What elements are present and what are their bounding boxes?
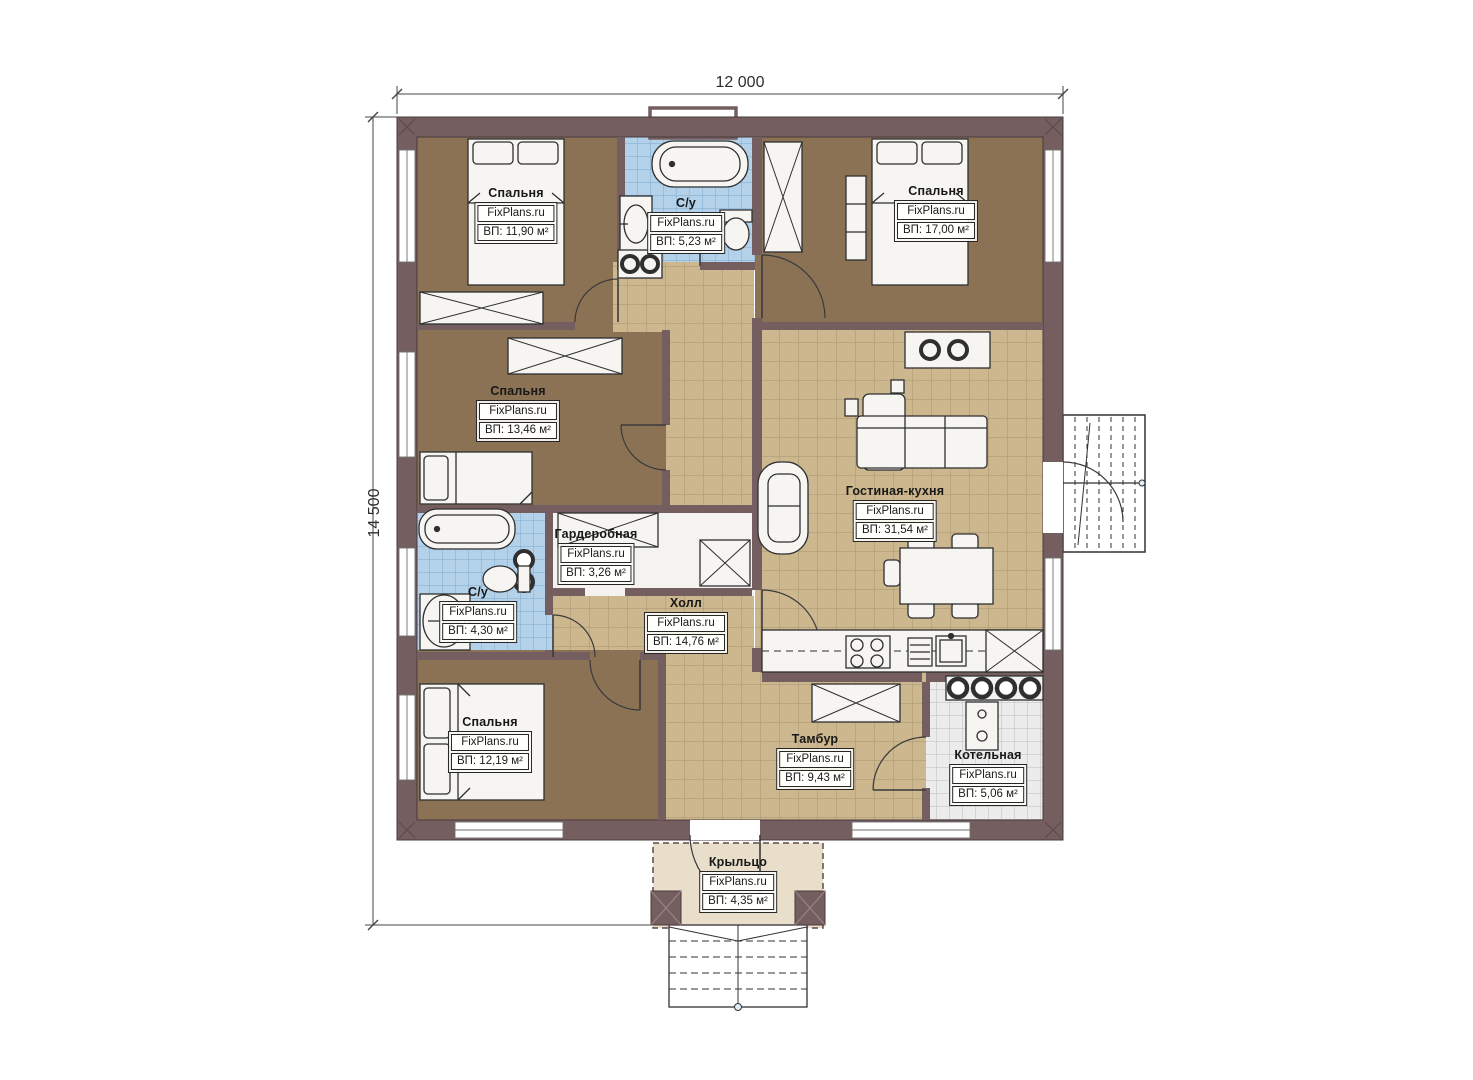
room-site: FixPlans.ru — [952, 767, 1024, 784]
room-site: FixPlans.ru — [856, 503, 934, 520]
stove-icon — [846, 636, 890, 668]
room-name: Гардеробная — [554, 527, 637, 541]
room-site: FixPlans.ru — [560, 546, 632, 563]
room-site: FixPlans.ru — [477, 205, 554, 222]
room-label-vestibule: Тамбур FixPlans.ru ВП: 9,43 м² — [776, 732, 854, 790]
room-label-bedroom-2: Спальня FixPlans.ru ВП: 17,00 м² — [894, 184, 978, 242]
window-icon — [399, 150, 415, 262]
room-info-box: FixPlans.ru ВП: 4,35 м² — [699, 871, 777, 913]
room-info-box: FixPlans.ru ВП: 11,90 м² — [474, 202, 557, 244]
room-area: ВП: 12,19 м² — [451, 753, 529, 770]
room-info-box: FixPlans.ru ВП: 14,76 м² — [644, 612, 728, 654]
room-name: Крыльцо — [709, 855, 767, 869]
room-info-box: FixPlans.ru ВП: 13,46 м² — [476, 400, 560, 442]
room-label-bedroom-3: Спальня FixPlans.ru ВП: 13,46 м² — [476, 384, 560, 442]
room-area: ВП: 31,54 м² — [856, 522, 934, 539]
room-info-box: FixPlans.ru ВП: 5,23 м² — [647, 212, 725, 254]
room-site: FixPlans.ru — [479, 403, 557, 420]
dimension-width-label: 12 000 — [690, 74, 790, 92]
room-label-living-kitchen: Гостиная-кухня FixPlans.ru ВП: 31,54 м² — [846, 484, 945, 542]
room-site: FixPlans.ru — [647, 615, 725, 632]
room-label-wardrobe: Гардеробная FixPlans.ru ВП: 3,26 м² — [554, 527, 637, 585]
room-name: С/у — [676, 196, 696, 210]
room-name: Спальня — [490, 384, 545, 398]
room-label-hall: Холл FixPlans.ru ВП: 14,76 м² — [644, 596, 728, 654]
room-site: FixPlans.ru — [442, 604, 514, 621]
room-info-box: FixPlans.ru ВП: 9,43 м² — [776, 748, 854, 790]
room-label-bedroom-4: Спальня FixPlans.ru ВП: 12,19 м² — [448, 715, 532, 773]
room-name: Холл — [670, 596, 702, 610]
kitchen-counter-icon — [762, 630, 1043, 672]
room-area: ВП: 13,46 м² — [479, 422, 557, 439]
room-site: FixPlans.ru — [451, 734, 529, 751]
floor-plan: 12 000 14 500 Спальня FixPlans.ru ВП: 11… — [0, 0, 1473, 1080]
kitchen-sink-icon — [936, 634, 966, 667]
room-label-boiler: Котельная FixPlans.ru ВП: 5,06 м² — [949, 748, 1027, 806]
room-label-bathroom-top: С/у FixPlans.ru ВП: 5,23 м² — [647, 196, 725, 254]
room-name: Спальня — [488, 186, 543, 200]
room-info-box: FixPlans.ru ВП: 31,54 м² — [853, 500, 937, 542]
wardrobe-icon — [812, 684, 900, 722]
window-icon — [455, 822, 563, 838]
window-icon — [399, 548, 415, 636]
room-label-porch: Крыльцо FixPlans.ru ВП: 4,35 м² — [699, 855, 777, 913]
room-label-bathroom-left: С/у FixPlans.ru ВП: 4,30 м² — [439, 585, 517, 643]
exterior-stair-right — [1063, 415, 1145, 552]
washer-icon — [618, 250, 662, 278]
floor-plan-drawing — [0, 0, 1473, 1080]
room-area: ВП: 14,76 м² — [647, 634, 725, 651]
porch-steps — [669, 925, 807, 1011]
door-opening-stairs — [1043, 462, 1063, 533]
room-info-box: FixPlans.ru ВП: 5,06 м² — [949, 764, 1027, 806]
shelving-icon — [700, 540, 750, 586]
dimension-height-label: 14 500 — [366, 463, 384, 563]
window-icon — [399, 352, 415, 457]
room-area: ВП: 3,26 м² — [560, 565, 632, 582]
bathtub-icon — [419, 509, 515, 549]
room-name: Спальня — [908, 184, 963, 198]
room-area: ВП: 5,23 м² — [650, 234, 722, 251]
room-site: FixPlans.ru — [897, 203, 975, 220]
corner-cabinet-icon — [986, 630, 1043, 672]
room-info-box: FixPlans.ru ВП: 17,00 м² — [894, 200, 978, 242]
room-info-box: FixPlans.ru ВП: 12,19 м² — [448, 731, 532, 773]
room-info-box: FixPlans.ru ВП: 3,26 м² — [557, 543, 635, 585]
room-name: Спальня — [462, 715, 517, 729]
room-name: Тамбур — [792, 732, 839, 746]
room-name: С/у — [468, 585, 488, 599]
room-info-box: FixPlans.ru ВП: 4,30 м² — [439, 601, 517, 643]
armchair-icon — [758, 462, 808, 554]
window-icon — [399, 695, 415, 780]
drawer-unit-icon — [908, 638, 932, 666]
room-label-bedroom-1: Спальня FixPlans.ru ВП: 11,90 м² — [474, 186, 557, 244]
room-area: ВП: 4,30 м² — [442, 623, 514, 640]
room-name: Котельная — [954, 748, 1021, 762]
wardrobe-icon — [420, 292, 543, 324]
room-name: Гостиная-кухня — [846, 484, 945, 498]
kitchen-island-icon — [905, 332, 990, 368]
window-icon — [1045, 558, 1061, 650]
bathtub-icon — [652, 141, 748, 187]
room-area: ВП: 4,35 м² — [702, 893, 774, 910]
window-icon — [1045, 150, 1061, 262]
dresser-icon — [846, 176, 866, 260]
room-area: ВП: 17,00 м² — [897, 222, 975, 239]
room-site: FixPlans.ru — [702, 874, 774, 891]
room-area: ВП: 5,06 м² — [952, 786, 1024, 803]
room-site: FixPlans.ru — [779, 751, 851, 768]
room-area: ВП: 9,43 м² — [779, 770, 851, 787]
door-opening-entrance — [690, 820, 760, 840]
closet-icon — [764, 142, 802, 252]
room-area: ВП: 11,90 м² — [477, 224, 554, 241]
window-icon — [852, 822, 970, 838]
single-bed-icon — [420, 452, 532, 504]
room-site: FixPlans.ru — [650, 215, 722, 232]
wardrobe-icon — [508, 338, 622, 374]
